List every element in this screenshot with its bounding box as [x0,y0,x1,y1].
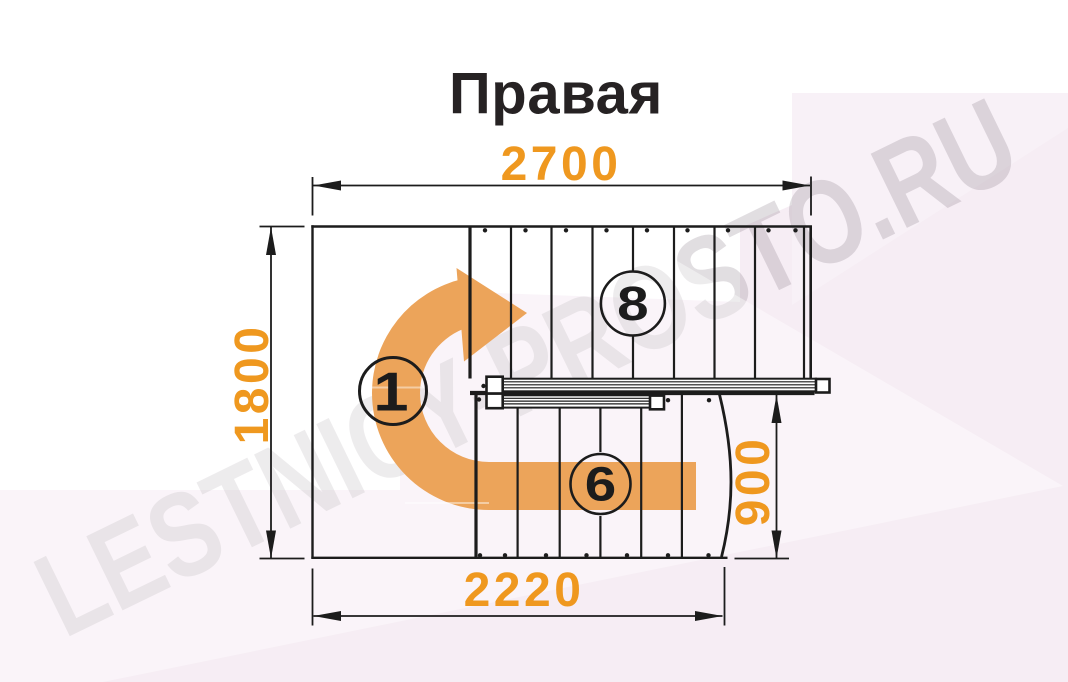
svg-text:8: 8 [617,277,649,331]
svg-text:2700: 2700 [501,138,622,191]
svg-text:Правая: Правая [449,62,663,127]
svg-text:2220: 2220 [464,564,585,617]
svg-text:6: 6 [585,458,617,512]
svg-text:1: 1 [373,360,408,422]
svg-text:900: 900 [727,436,780,527]
